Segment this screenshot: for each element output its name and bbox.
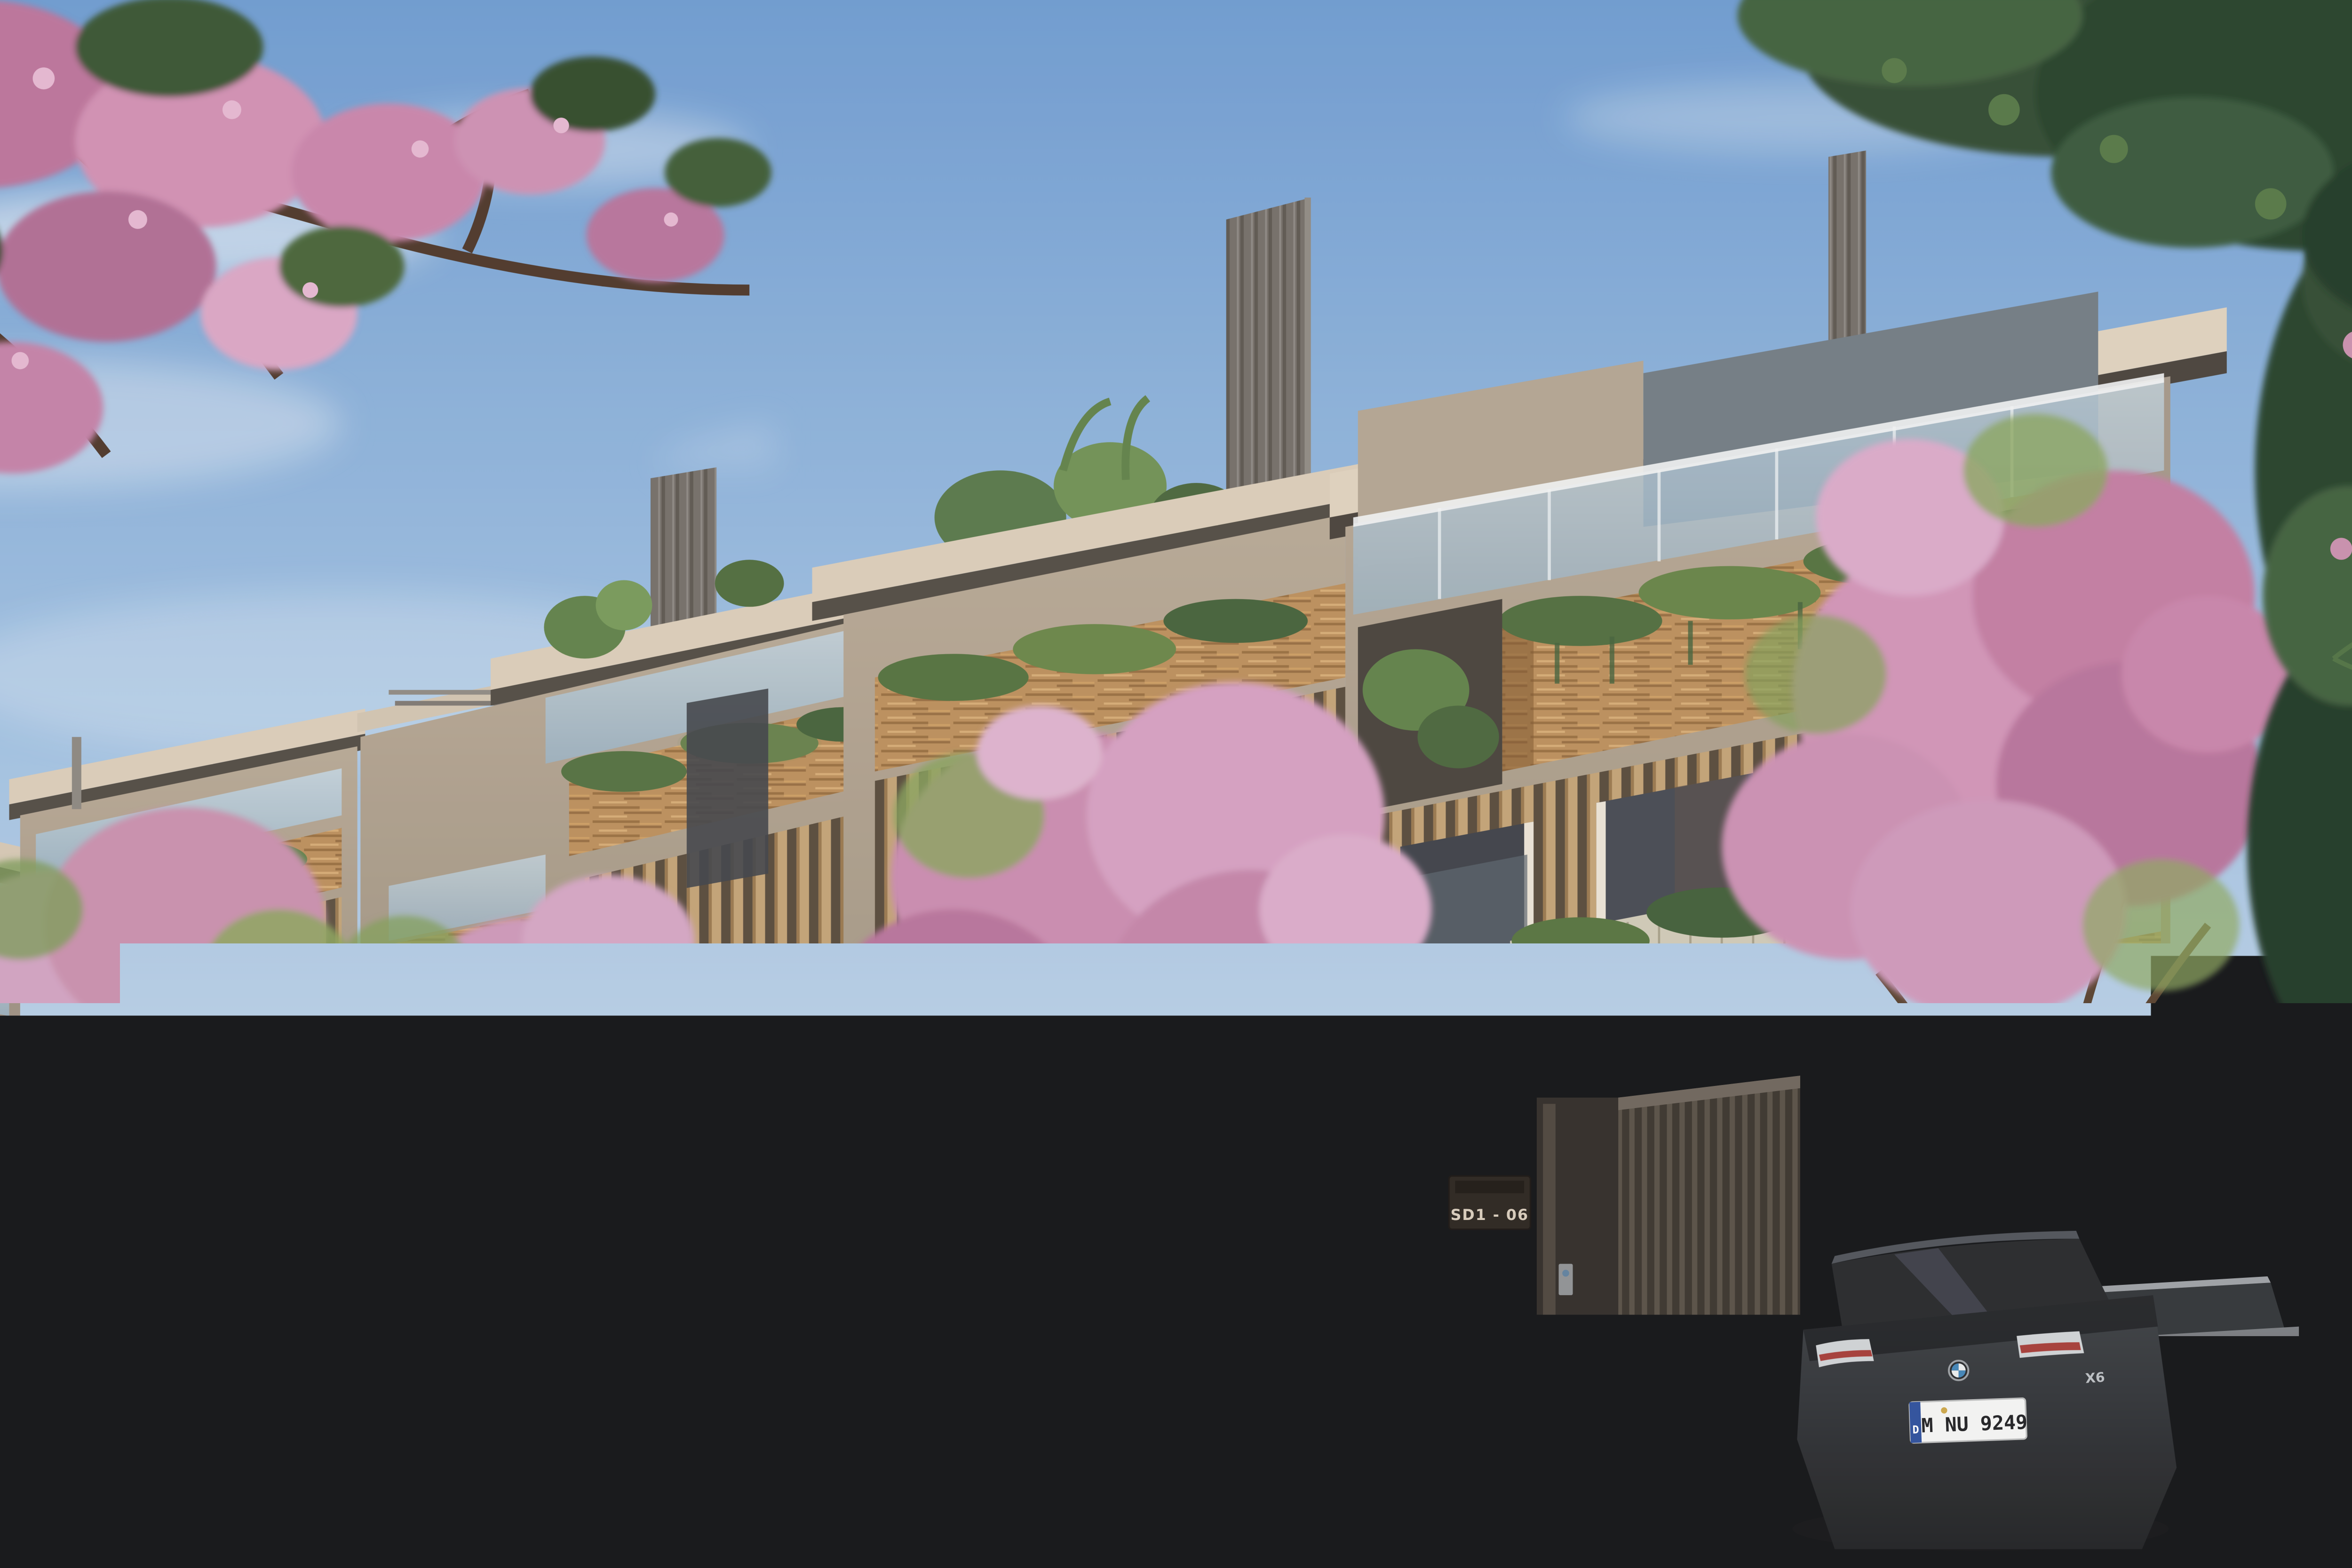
street-render: SD1 - 06: [0, 0, 2352, 1568]
render-stage: SD1 - 06: [0, 0, 2352, 1568]
sunlight-wash: [0, 0, 2352, 1568]
